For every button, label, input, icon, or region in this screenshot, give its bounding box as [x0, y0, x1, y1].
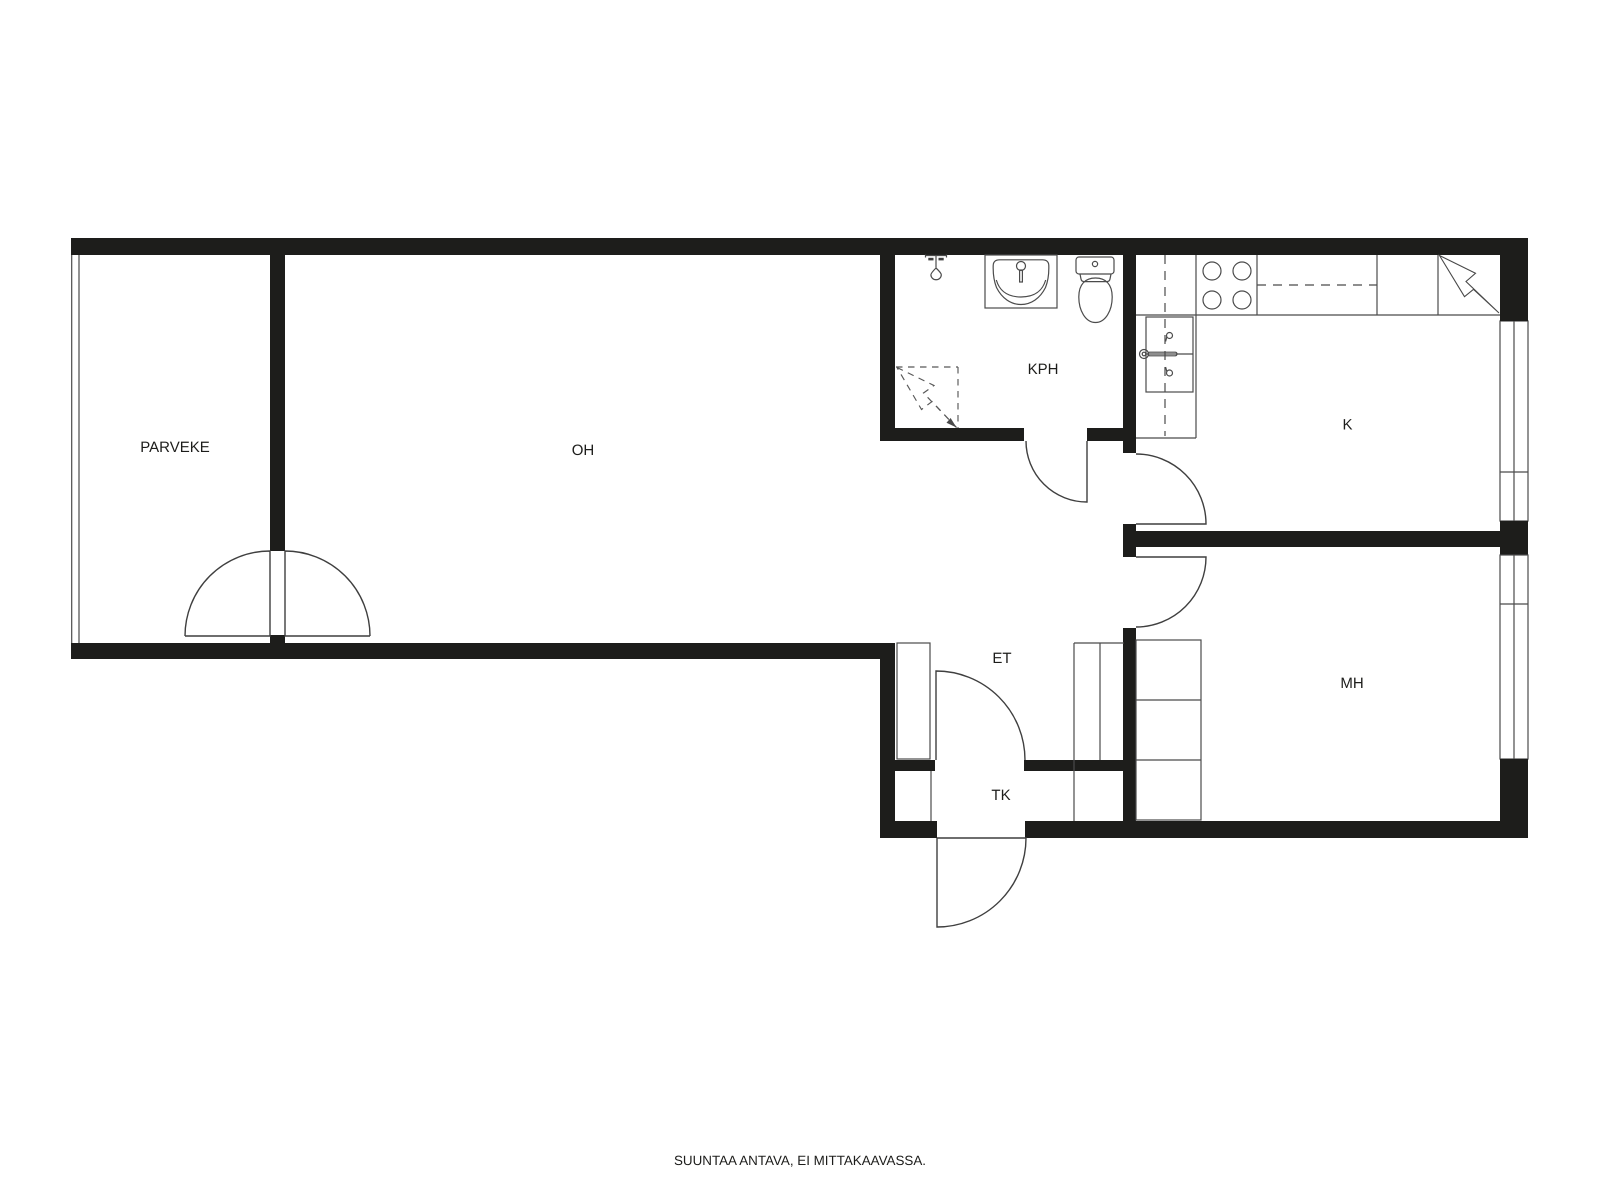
svg-text:MH: MH: [1340, 675, 1363, 692]
svg-text:K: K: [1342, 417, 1352, 434]
svg-text:TK: TK: [991, 787, 1010, 804]
svg-text:ET: ET: [992, 650, 1011, 667]
svg-text:OH: OH: [572, 442, 595, 459]
svg-text:SUUNTAA ANTAVA, EI MITTAKAAVAS: SUUNTAA ANTAVA, EI MITTAKAAVASSA.: [674, 1153, 926, 1168]
svg-text:PARVEKE: PARVEKE: [140, 439, 209, 456]
svg-text:KPH: KPH: [1028, 361, 1059, 378]
